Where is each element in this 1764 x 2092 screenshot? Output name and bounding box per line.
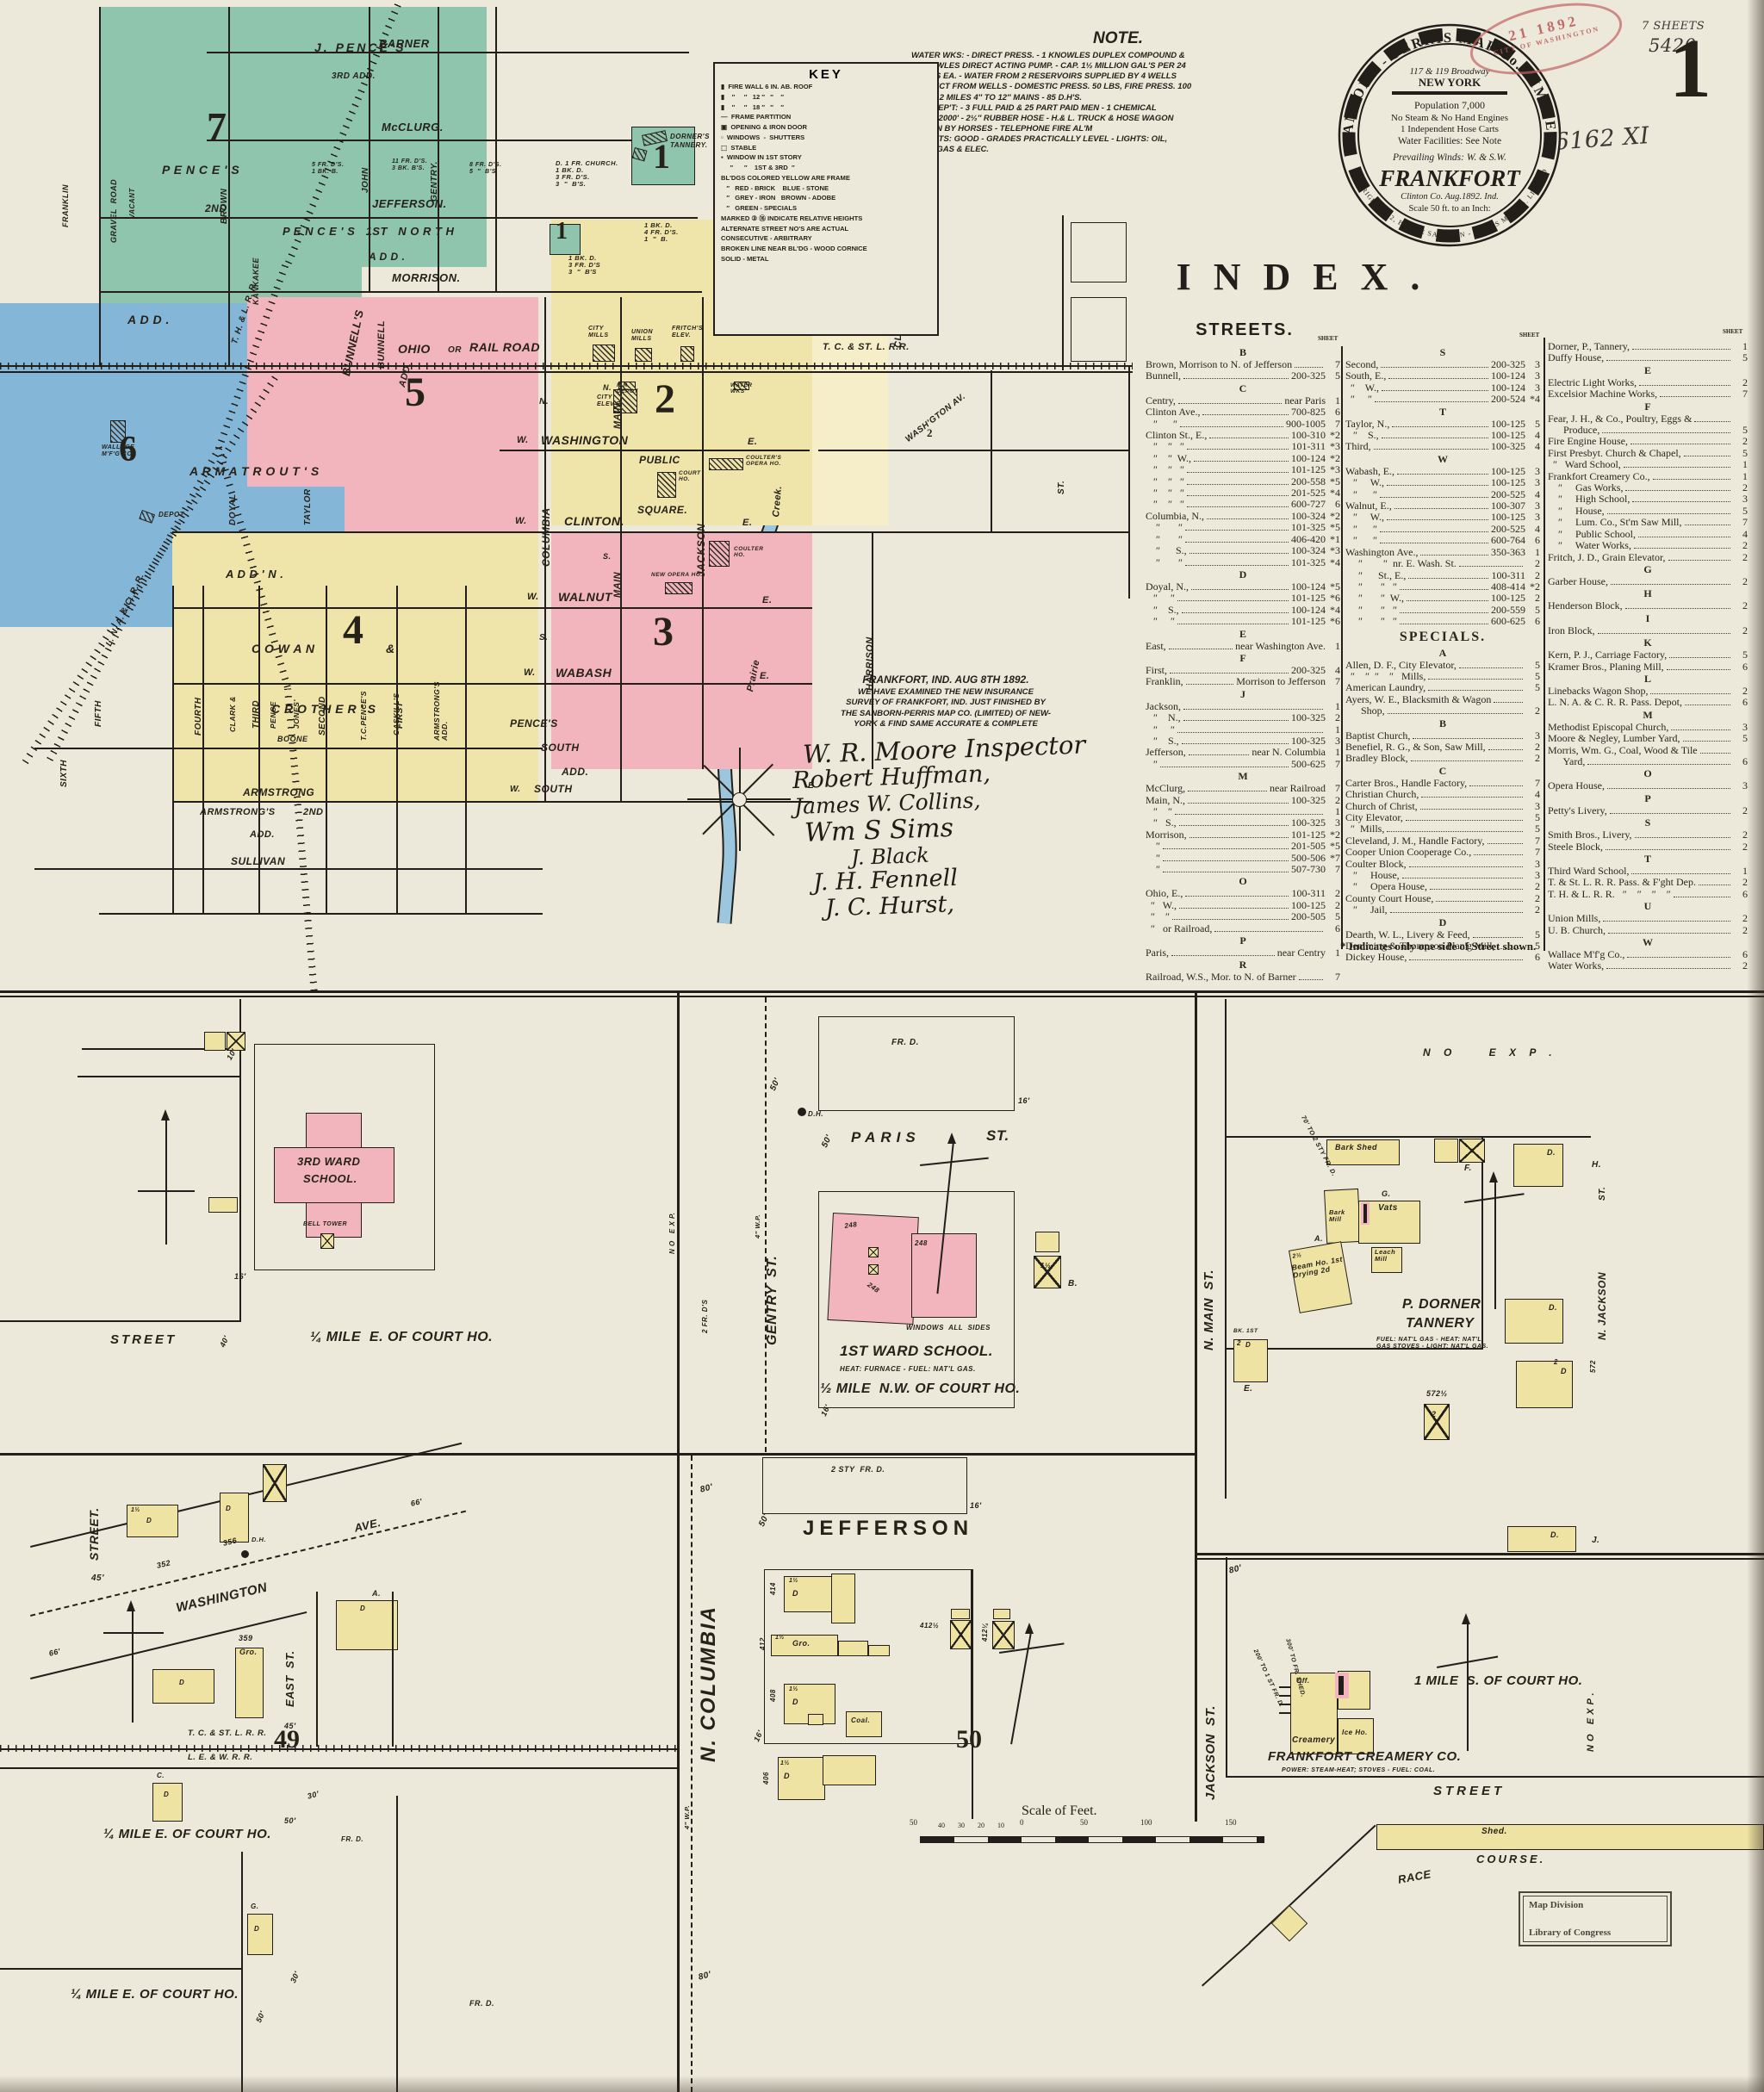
map-label: UNION MILLS: [631, 329, 653, 342]
index-dots: [1488, 749, 1523, 750]
index-dots: [1407, 600, 1488, 601]
map-shape-hat: [635, 348, 652, 362]
index-dots: [1182, 612, 1289, 613]
map-label: Vats: [1378, 1204, 1398, 1214]
map-shape-ln: [1226, 1557, 1227, 1778]
map-label: 1: [556, 219, 568, 245]
map-label: JACKSON: [696, 524, 707, 577]
index-entry-sheet: 2: [1733, 600, 1748, 611]
index-entry-sheet: 5: [1733, 506, 1748, 517]
index-entry-name: Clinton St., E.,: [1146, 430, 1207, 441]
map-label: 408: [770, 1689, 778, 1702]
index-dots: [1607, 788, 1730, 789]
index-entry-range: 101-125: [1291, 464, 1326, 475]
index-letter: W: [1438, 453, 1448, 465]
map-label: D. 1 FR. CHURCH. 1 BK. D. 3 FR. D'S. 3 ″…: [556, 160, 618, 188]
index-entry-sheet: 4: [1733, 529, 1748, 540]
index-row: B: [1345, 717, 1540, 730]
index-entry-sheet: 3: [1525, 466, 1540, 477]
map-label: A.: [1314, 1235, 1323, 1244]
map-label: 356: [222, 1536, 238, 1548]
index-entry-sheet: 1: [1326, 641, 1340, 652]
index-entry-name: ″: [1146, 759, 1158, 770]
index-dots: [1685, 705, 1730, 705]
index-entry-sheet: 2: [1326, 712, 1340, 723]
index-dots: [1177, 600, 1289, 601]
index-row: ″201-505*5: [1146, 841, 1340, 852]
index-column-1: B Brown, Morrison to N. of Jefferson7 Bu…: [1146, 346, 1340, 984]
map-label: Bark Shed: [1335, 1144, 1377, 1152]
map-label: D.: [1550, 1531, 1559, 1540]
index-row: Paris,near Centry1: [1146, 947, 1340, 959]
map-shape-outy: [208, 1197, 238, 1213]
index-letter: S: [1645, 816, 1651, 829]
index-dots: [1187, 484, 1289, 485]
map-label: 2: [927, 427, 933, 439]
index-row: East,near Washington Ave.1: [1146, 641, 1340, 652]
index-entry-sheet: 5: [1733, 733, 1748, 744]
index-row: ″ W.,100-1243: [1345, 382, 1540, 394]
index-dots: [1187, 449, 1289, 450]
index-row: C: [1146, 382, 1340, 395]
map-label: ADD.: [562, 767, 588, 778]
index-entry-range: 100-310: [1291, 430, 1326, 441]
index-entry-sheet: *6: [1326, 616, 1340, 627]
index-letter: B: [1239, 346, 1246, 358]
index-entry-range: 500-506: [1291, 853, 1326, 864]
map-label: 1½: [775, 1635, 785, 1642]
map-shape-xb: [868, 1247, 879, 1257]
map-label: W.: [524, 668, 536, 679]
index-letter: T: [1439, 406, 1446, 418]
map-label: STREET: [110, 1333, 177, 1347]
index-row: ″ Opera House,2: [1345, 881, 1540, 892]
map-shape-ln: [172, 531, 1128, 533]
index-entry-name: Duffy House,: [1548, 352, 1604, 363]
index-dots: [1436, 901, 1523, 902]
map-shape-outy: [951, 1609, 970, 1619]
index-entry-name: ″ ″: [1345, 489, 1377, 500]
index-entry-range: 100-124: [1491, 370, 1525, 382]
index-row: E: [1146, 628, 1340, 641]
map-shape-pfill: [247, 297, 538, 487]
map-shape-ln: [1226, 1136, 1591, 1138]
index-entry-name: ″ ″: [1146, 806, 1172, 817]
index-entry-sheet: 3: [1733, 494, 1748, 505]
index-row: Centry,near Paris1: [1146, 395, 1340, 407]
index-dots: [1668, 560, 1731, 561]
index-row: ″ ″ ″600-6256: [1345, 616, 1540, 627]
map-label: 49: [274, 1726, 300, 1754]
index-entry-name: ″ ″: [1345, 394, 1372, 405]
index-row: D: [1345, 916, 1540, 929]
index-row: ″ House,5: [1548, 506, 1748, 517]
index-dots: [1390, 912, 1523, 913]
index-entry-name: ″ High School,: [1548, 494, 1630, 505]
index-dots: [1459, 667, 1523, 668]
index-entry-name: Railroad, W.S., Mor. to N. of Barner: [1146, 972, 1296, 983]
index-row: Demming & Thompson Plan'g Mill,5: [1345, 940, 1540, 952]
map-label: N.: [603, 384, 612, 393]
index-row: ″507-7307: [1146, 864, 1340, 875]
index-entry-sheet: 2: [1733, 960, 1748, 972]
key-line: ″ GREEN - SPECIALS: [721, 203, 931, 214]
map-label: H.: [1592, 1161, 1601, 1170]
index-entry-sheet: 5: [1525, 682, 1540, 693]
map-label: COULTER HO.: [734, 546, 763, 558]
map-shape-xb: [1424, 1404, 1450, 1440]
index-dots: [1400, 589, 1488, 590]
index-letter: SPECIALS.: [1400, 630, 1486, 644]
index-entry-name: Church of Christ,: [1345, 801, 1418, 812]
index-entry-name: ″ ″: [1146, 419, 1177, 430]
index-entry-name: Wabash, E.,: [1345, 466, 1394, 477]
index-row: Cooper Union Cooperage Co.,7: [1345, 847, 1540, 858]
index-row: Clinton St., E.,100-310*2: [1146, 430, 1340, 441]
map-label: WALNUT: [558, 591, 612, 604]
key-lines: ▮ FIRE WALL 6 IN. AB. ROOF▮ ″ ″ 12 ″ ″ ″…: [721, 82, 931, 264]
map-label: ½ MILE N.W. OF COURT HO.: [820, 1381, 1020, 1396]
map-shape-outy: [152, 1783, 183, 1822]
index-entry-sheet: 2: [1733, 829, 1748, 841]
index-entry-name: Third,: [1345, 441, 1371, 452]
index-entry-range: 100-307: [1491, 500, 1525, 512]
index-letter: O: [1239, 875, 1246, 887]
index-entry-sheet: 3: [1525, 801, 1540, 812]
key-line: ▣ OPENING & IRON DOOR: [721, 122, 931, 133]
map-shape-tri: [161, 1109, 170, 1120]
map-shape-outy: [1513, 1144, 1563, 1187]
index-dots: [1638, 537, 1730, 537]
index-entry-range: 100-125: [1491, 419, 1525, 430]
index-row: Washington Ave.,350-3631: [1345, 547, 1540, 558]
index-entry-range: near N. Columbia: [1252, 747, 1326, 758]
map-shape-xb: [950, 1620, 972, 1649]
map-shape-hat: [680, 346, 694, 362]
index-entry-name: Taylor, N.,: [1345, 419, 1389, 430]
map-label: &: [386, 642, 395, 655]
map-label: BK. 1ST: [1233, 1328, 1258, 1334]
index-row: ″ ″200-5254: [1345, 489, 1540, 500]
index-letter: A: [1439, 647, 1447, 659]
map-label: 1 BK. D. 3 FR. D'S 3 ″ B'S: [568, 255, 600, 276]
index-row: Yard,6: [1548, 756, 1748, 767]
index-row: ″ Ward School,1: [1548, 459, 1748, 470]
map-label: G.: [1382, 1190, 1391, 1199]
index-row: T. & St. L. R. R. Pass. & F'ght Dep.2: [1548, 877, 1748, 888]
index-entry-name: ″ Gas Works,: [1548, 482, 1623, 494]
index-entry-sheet: 5: [1525, 940, 1540, 952]
index-entry-sheet: 5: [1733, 352, 1748, 363]
index-column-3: Dorner, P., Tannery,1 Duffy House,5 E El…: [1548, 341, 1748, 972]
index-entry-name: Henderson Block,: [1548, 600, 1623, 611]
map-label: COULTER'S OPERA HO.: [746, 455, 781, 467]
index-entry-name: Produce,: [1548, 425, 1599, 436]
map-shape-xb: [868, 1264, 879, 1275]
map-label: D: [792, 1590, 798, 1598]
map-label: PARIS: [851, 1130, 921, 1145]
index-letter: B: [1439, 717, 1446, 729]
index-row: M: [1548, 709, 1748, 722]
map-label: D: [146, 1518, 152, 1525]
index-entry-range: 100-325: [1291, 736, 1326, 747]
index-dots: [1608, 933, 1730, 934]
index-row: ″ ″ ″408-414*2: [1345, 581, 1540, 593]
index-dots: [1420, 555, 1488, 556]
seal-winds: Prevailing Winds: W. & S.W.: [1392, 152, 1506, 163]
index-dots: [1630, 444, 1730, 444]
map-label: N O E X P.: [669, 1212, 677, 1254]
map-label: PENCE: [270, 701, 277, 729]
map-label: FRITCH'S ELEV.: [672, 326, 703, 338]
note-line: DRAWN BY HORSES - TELEPHONE FIRE AL'M: [911, 124, 1325, 134]
index-entry-sheet: 7: [1326, 972, 1340, 983]
index-dots: [1180, 426, 1283, 427]
index-dots: [1374, 449, 1488, 450]
map-shape-ln: [920, 1158, 989, 1166]
index-row: ″500-506*7: [1146, 853, 1340, 864]
index-entry-sheet: *6: [1326, 593, 1340, 604]
map-label: Coal.: [851, 1717, 870, 1725]
key-line: ▮ ″ ″ 18 ″ ″ ″: [721, 102, 931, 113]
index-entry-name: ″ ″ W.,: [1345, 593, 1404, 604]
index-row: ″ Lum. Co., St'm Saw Mill,7: [1548, 517, 1748, 528]
map-shape-blk: [1363, 1204, 1367, 1223]
index-entry-name: ″ ″: [1146, 534, 1183, 545]
map-label: SIXTH: [60, 760, 70, 787]
note-line: HOURS EA. - WATER FROM 2 RESERVOIRS SUPP…: [911, 71, 1325, 82]
map-label: 50: [910, 1819, 917, 1828]
map-shape-ln: [99, 913, 543, 915]
index-entry-range: 101-125: [1291, 593, 1326, 604]
map-shape-outy: [1376, 1824, 1764, 1850]
index-row: Petty's Livery,2: [1548, 805, 1748, 816]
index-entry-name: McClurg,: [1146, 783, 1185, 794]
key-line: CONSECUTIVE - ARBITRARY: [721, 233, 931, 244]
index-dots: [1408, 578, 1488, 579]
index-entry-range: 200-325: [1291, 665, 1326, 676]
map-label: 4″ W.P.: [755, 1214, 761, 1238]
index-entry-name: T. H. & L. R. R. ″ ″ ″ ″: [1548, 889, 1671, 900]
map-shape-ln: [1062, 215, 1064, 370]
index-row: W: [1548, 936, 1748, 949]
index-row: ″ ″ ″201-525*4: [1146, 487, 1340, 499]
index-entry-sheet: 2: [1733, 913, 1748, 924]
index-entry-name: Opera House,: [1548, 780, 1605, 791]
map-label: 80': [1228, 1564, 1243, 1576]
map-label: P. DORNER: [1402, 1297, 1481, 1312]
map-label: 572½: [1426, 1390, 1448, 1399]
map-label: BOONE: [277, 736, 308, 744]
map-label: GENTRY.: [431, 161, 440, 202]
index-dots: [1473, 937, 1523, 938]
index-entry-range: 200-505: [1291, 911, 1326, 922]
map-label: 412¼: [982, 1623, 990, 1642]
index-letter: L: [1644, 673, 1651, 685]
index-dots: [1632, 501, 1730, 502]
index-dots: [1182, 743, 1289, 744]
index-entry-sheet: 6: [1326, 407, 1340, 418]
map-label: 50': [821, 1133, 835, 1149]
index-entry-sheet: *3: [1326, 441, 1340, 452]
map-label: A D D .: [127, 313, 170, 326]
index-entry-range: 100-124: [1291, 453, 1326, 464]
map-label: OR: [448, 346, 462, 356]
index-row: Smith Bros., Livery,2: [1548, 829, 1748, 841]
map-shape-outy: [1271, 1905, 1307, 1941]
index-entry-sheet: 7: [1525, 835, 1540, 847]
index-row: ″ ″ ″ ″ Mills,5: [1345, 671, 1540, 682]
map-label: 66': [410, 1498, 423, 1509]
index-entry-range: 100-125: [1491, 477, 1525, 488]
index-entry-name: Water Works,: [1548, 960, 1604, 972]
map-shape-hat: [709, 541, 730, 567]
map-label: 50: [1080, 1819, 1088, 1828]
map-label: GENTRY ST.: [765, 1256, 780, 1345]
map-label: A D D ' N .: [226, 568, 283, 580]
index-dots: [1179, 908, 1289, 909]
map-label: FIFTH: [95, 700, 104, 727]
map-label: MAIN: [613, 572, 624, 598]
map-label: 50': [758, 1512, 772, 1528]
index-entry-name: ″ ″ ″ ″ Mills,: [1345, 671, 1425, 682]
map-label: N. MAIN ST.: [1202, 1269, 1216, 1350]
map-label: TANNERY.: [670, 142, 707, 150]
index-entry-sheet: 5: [1525, 812, 1540, 823]
map-label: 248: [915, 1240, 928, 1248]
note-block: NOTE. WATER WKS: - DIRECT PRESS. - 1 KNO…: [911, 29, 1325, 156]
index-entry-sheet: 2: [1525, 570, 1540, 581]
index-dots: [1660, 396, 1730, 397]
index-row: ″ ″ ″101-125*3: [1146, 464, 1340, 475]
index-entry-sheet: 6: [1733, 889, 1748, 900]
index-entry-name: Walnut, E.,: [1345, 500, 1392, 512]
map-label: D.: [1549, 1304, 1557, 1313]
map-label: B.: [1068, 1280, 1078, 1289]
index-row: ″ Water Works,2: [1548, 540, 1748, 551]
index-letter: K: [1643, 636, 1651, 649]
index-row: Ayers, W. E., Blacksmith & Wagon: [1345, 694, 1540, 705]
index-row: Second,200-3253: [1345, 359, 1540, 370]
map-label: 16': [1018, 1097, 1030, 1106]
index-row: ″ W.,100-1253: [1345, 477, 1540, 488]
index-row: ″ S.,100-1254: [1345, 430, 1540, 441]
map-label: SULLIVAN: [231, 856, 285, 867]
index-entry-sheet: 4: [1525, 789, 1540, 800]
map-label: A D D .: [369, 251, 405, 263]
index-entry-sheet: *3: [1326, 545, 1340, 556]
map-label: 1ST WARD SCHOOL.: [840, 1344, 993, 1359]
index-entry-name: ″ ″ ″: [1345, 616, 1397, 627]
index-entry-name: Morrison,: [1146, 829, 1187, 841]
map-label: CLINTON.: [564, 515, 624, 528]
map-label: Gro.: [239, 1648, 258, 1657]
index-entry-sheet: 7: [1326, 783, 1340, 794]
index-row: T: [1345, 406, 1540, 419]
index-row: First Presbyt. Church & Chapel,5: [1548, 448, 1748, 459]
index-entry-sheet: 2: [1733, 841, 1748, 853]
map-label: GASKILL'S: [393, 693, 401, 736]
map-label: 4″ W.P.: [684, 1805, 691, 1829]
index-row: I: [1548, 612, 1748, 625]
map-label: 66': [48, 1648, 61, 1659]
map-label: ARMSTRONG'S ADD.: [433, 681, 449, 741]
index-row: Bunnell,200-3255: [1146, 370, 1340, 382]
map-shape-ln: [0, 1320, 241, 1322]
map-label: COURT HO.: [679, 470, 701, 482]
index-entry-sheet: 3: [1525, 477, 1540, 488]
index-entry-name: ″ W.,: [1146, 900, 1177, 911]
index-entry-name: ″ ″ ″: [1146, 487, 1184, 499]
index-row: City Elevator,5: [1345, 812, 1540, 823]
index-row: Brown, Morrison to N. of Jefferson7: [1146, 359, 1340, 370]
index-row: ″ ″200-524*4: [1345, 394, 1540, 405]
index-row: Coulter Block,3: [1345, 859, 1540, 870]
map-label: Bark Mill: [1329, 1209, 1345, 1223]
index-dots: [1388, 378, 1488, 379]
key-line: ▫ WINDOWS - SHUTTERS: [721, 133, 931, 143]
index-letter: D: [1439, 916, 1447, 928]
seal-city: FRANKFORT: [1378, 165, 1521, 191]
map-shape-ln: [500, 450, 810, 451]
map-shape-outy: [1035, 1232, 1059, 1252]
map-shape-ln: [1196, 1553, 1764, 1555]
signatures: W. R. Moore InspectorRobert Huffman,Jame…: [799, 736, 1092, 918]
map-label: 1½: [131, 1507, 140, 1514]
index-entry-name: Benefiel, R. G., & Son, Saw Mill,: [1345, 742, 1486, 753]
index-dots: [1177, 732, 1323, 733]
map-label: D.H.: [808, 1111, 823, 1119]
index-entry-sheet: 7: [1326, 419, 1340, 430]
map-shape-outy: [1507, 1526, 1576, 1552]
index-entry-name: First,: [1146, 665, 1167, 676]
index-entry-range: 200-525: [1491, 524, 1525, 535]
index-row: Dickey House,6: [1345, 952, 1540, 963]
index-row: ″ W.,100-1252: [1146, 900, 1340, 911]
map-shape-outy: [336, 1600, 398, 1650]
index-entry-sheet: 2: [1525, 705, 1540, 717]
map-label: FUEL: NAT'L GAS - HEAT: NAT'L GAS STOVES…: [1376, 1337, 1488, 1350]
index-dots: [1603, 921, 1730, 922]
index-letter: U: [1644, 900, 1652, 912]
index-dots: [1598, 633, 1730, 634]
index-row: F: [1548, 400, 1748, 413]
index-dots: [1669, 657, 1730, 658]
note-title: NOTE.: [911, 29, 1325, 48]
map-label: 2 STY FR. D.: [831, 1466, 885, 1474]
index-row: ″ ″1: [1146, 724, 1340, 736]
index-entry-name: ″ ″ ″: [1146, 441, 1184, 452]
map-label: A.: [372, 1590, 381, 1598]
map-label: WASHINGTON: [175, 1581, 269, 1616]
map-label: 150: [1225, 1819, 1237, 1828]
index-dots: [1380, 543, 1488, 543]
index-entry-sheet: 3: [1525, 730, 1540, 742]
index-row: First,200-3254: [1146, 665, 1340, 676]
index-entry-sheet: 5: [1525, 660, 1540, 671]
map-label: POWER: STEAM-HEAT; STOVES - FUEL: COAL.: [1282, 1767, 1435, 1774]
index-dots: [1380, 497, 1488, 498]
index-entry-name: ″ S.,: [1345, 430, 1379, 441]
map-shape-tri: [127, 1600, 135, 1611]
index-dots: [1194, 461, 1289, 462]
index-dots: [1185, 896, 1289, 897]
key-line: ″ GREY - IRON BROWN - ADOBE: [721, 193, 931, 203]
index-row: Cleveland, J. M., Handle Factory,7: [1345, 835, 1540, 847]
map-label: A R M A T R O U T ' S: [189, 465, 320, 478]
index-entry-name: Columbia, N.,: [1146, 511, 1204, 522]
index-entry-range: 507-730: [1291, 864, 1326, 875]
